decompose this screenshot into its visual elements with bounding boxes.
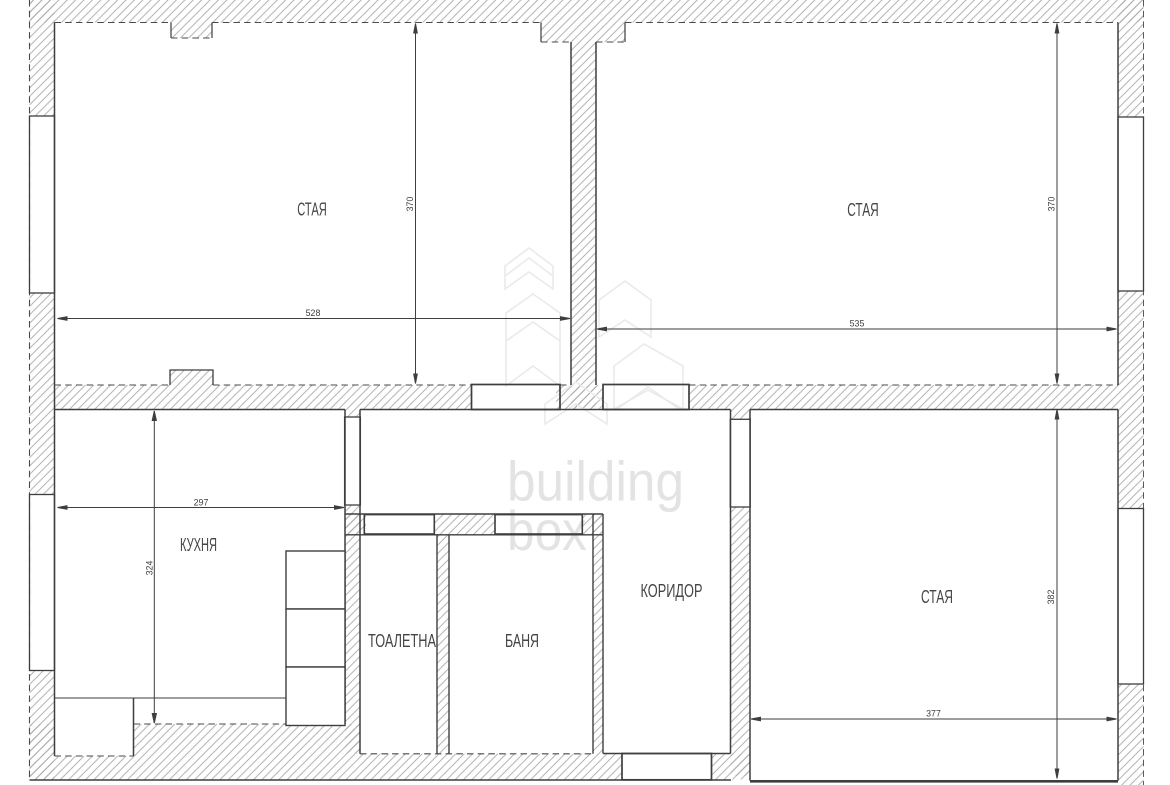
svg-text:КУХНЯ: КУХНЯ [180, 535, 217, 555]
svg-text:370: 370 [405, 197, 415, 212]
svg-text:382: 382 [1046, 590, 1056, 605]
svg-text:297: 297 [194, 498, 209, 508]
svg-text:СТАЯ: СТАЯ [297, 200, 327, 220]
svg-text:КОРИДОР: КОРИДОР [641, 581, 703, 601]
svg-text:СТАЯ: СТАЯ [847, 200, 879, 220]
svg-text:324: 324 [145, 561, 155, 576]
svg-text:box: box [507, 499, 587, 562]
svg-text:528: 528 [306, 308, 321, 318]
svg-text:370: 370 [1047, 197, 1057, 212]
svg-text:ТОАЛЕТНА: ТОАЛЕТНА [368, 631, 436, 651]
svg-text:СТАЯ: СТАЯ [921, 587, 953, 607]
svg-text:377: 377 [926, 709, 941, 719]
svg-text:БАНЯ: БАНЯ [505, 631, 539, 651]
svg-text:535: 535 [850, 319, 865, 329]
